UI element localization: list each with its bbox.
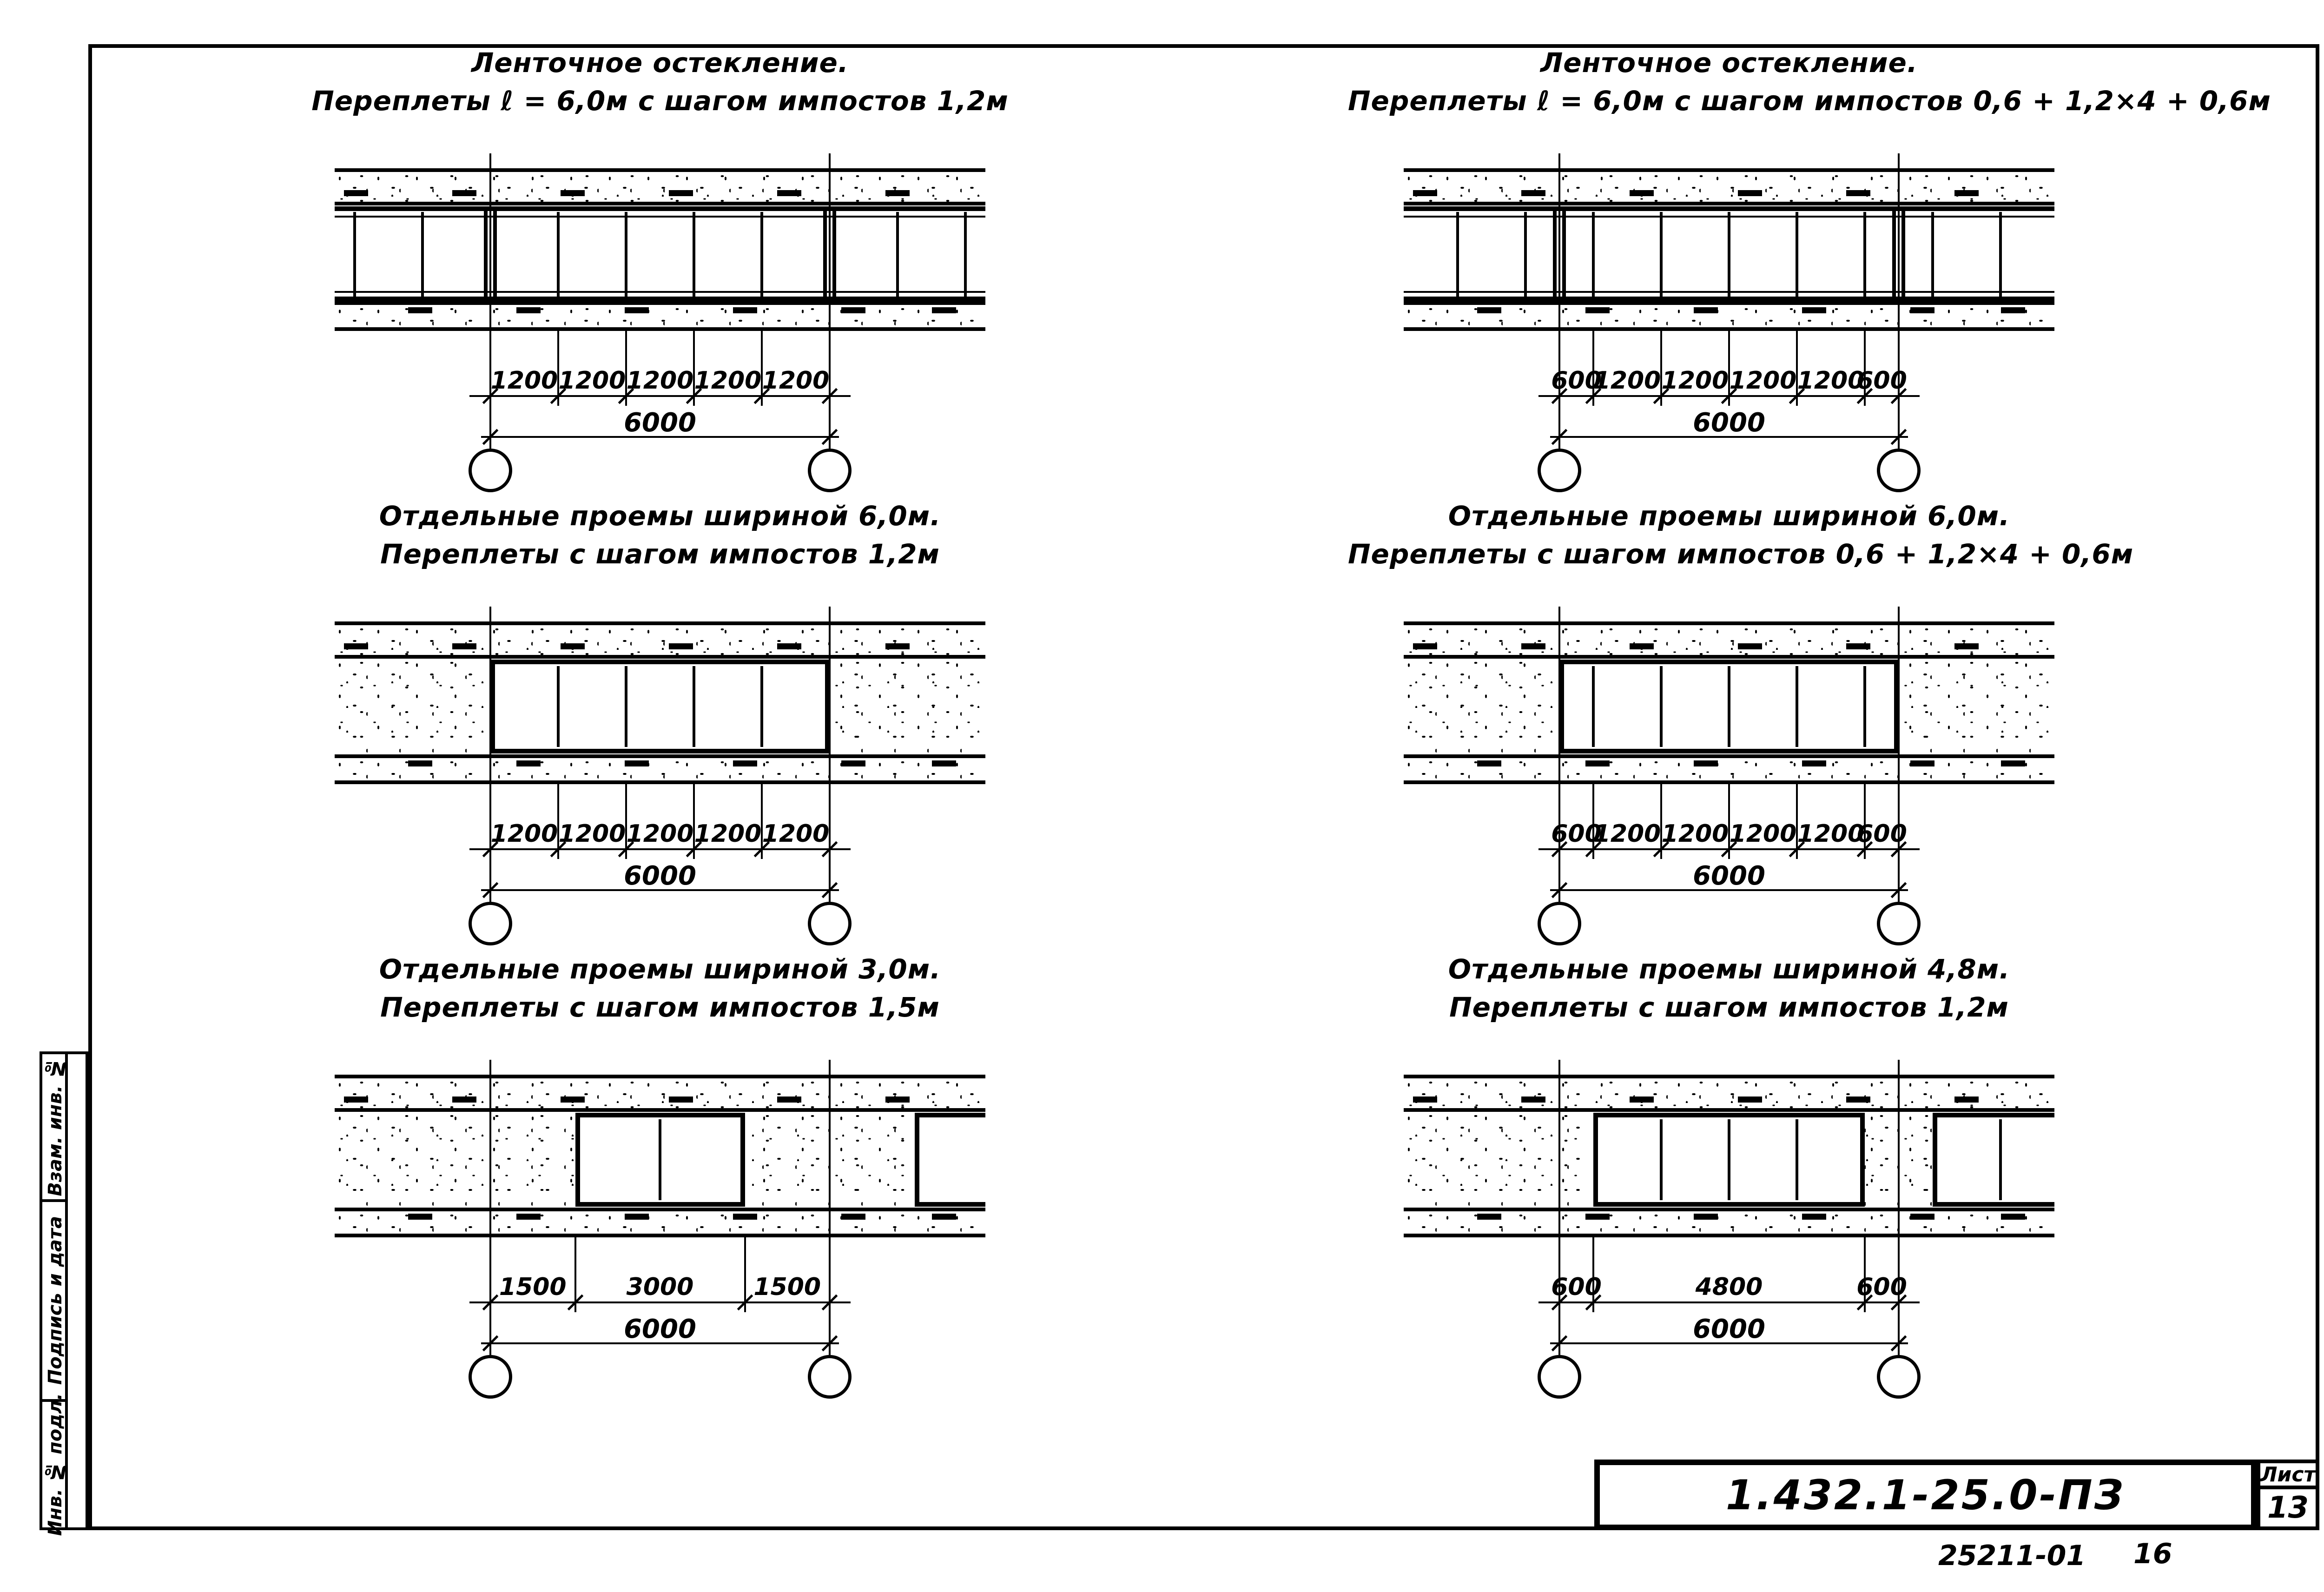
concrete-strip-top: [1404, 625, 2054, 655]
stamp-label: Взам. инв. №: [45, 1057, 66, 1196]
dimension-label: 1200: [1797, 367, 1865, 395]
sheet-label-cell: Лист: [2257, 1460, 2319, 1489]
grid-bubble: [808, 1355, 852, 1399]
window-mullion: [1524, 212, 1527, 297]
band-line: [335, 1208, 985, 1211]
concrete-dash-row: [1413, 760, 2045, 766]
window-mullion: [625, 212, 627, 297]
sash-joint-mullion: [1553, 206, 1557, 301]
dimension-label: 1200: [1662, 367, 1729, 395]
concrete-dash-row: [344, 643, 976, 649]
window-sash-frame-partial: [915, 1113, 986, 1207]
drawing-sheet: { "sheet": { "title_block": { "code": "1…: [0, 0, 2324, 1592]
window-mullion: [896, 212, 899, 297]
dimension-total-label: 6000: [624, 408, 696, 438]
band-line: [1404, 780, 2054, 784]
title-block: 1.432.1-25.0-ПЗ: [1594, 1460, 2257, 1530]
band-line: [1404, 301, 2054, 305]
window-mullion: [1728, 1119, 1730, 1200]
window-sash-frame-partial: [1933, 1113, 2054, 1207]
band-line: [1404, 1075, 2054, 1078]
dimension-label: 1200: [1730, 367, 1797, 395]
dimension-label: 600: [1551, 1273, 1602, 1301]
window-frame-line: [1404, 297, 2054, 301]
window-mullion: [557, 212, 560, 297]
panel-drawing: 1500300015006000: [335, 951, 985, 1406]
dimension-label: 600: [1856, 367, 1907, 395]
sash-joint-mullion: [832, 206, 836, 301]
panel-opening-3m-1-5: Отдельные проемы шириной 3,0м. Переплеты…: [335, 951, 985, 1406]
sash-joint-mullion: [493, 206, 497, 301]
window-frame-line: [335, 216, 985, 218]
concrete-strip-top: [1404, 172, 2054, 202]
window-mullion: [760, 666, 763, 747]
panel-drawing: 60012001200120012006006000: [1404, 44, 2054, 500]
dimension-label: 1200: [694, 820, 762, 848]
band-line: [1404, 202, 2054, 205]
sash-joint-mullion: [484, 206, 488, 301]
side-stamp-column: Взам. инв. № Подпись и дата Инв. № подл.: [40, 1051, 88, 1530]
grid-axis-line: [829, 1060, 831, 1355]
grid-axis-line: [1898, 205, 1900, 301]
window-mullion: [353, 212, 356, 297]
window-frame-line: [335, 297, 985, 301]
sash-joint-mullion: [1892, 206, 1896, 301]
grid-axis-line: [829, 205, 831, 301]
window-mullion: [421, 212, 424, 297]
window-mullion: [1863, 666, 1866, 747]
grid-bubble: [808, 449, 852, 492]
stamp-cell-vzam-inv: Взам. инв. №: [42, 1054, 68, 1202]
sheet-label: Лист: [2260, 1463, 2316, 1486]
dimension-label: 1200: [762, 820, 830, 848]
panel-drawing: 60012001200120012006006000: [1404, 497, 2054, 953]
margin-note-inventory: 25211-01: [1938, 1539, 2086, 1572]
grid-axis-line: [1558, 607, 1560, 902]
dimension-label: 3000: [627, 1273, 694, 1301]
concrete-strip-top: [335, 625, 985, 655]
concrete-dash-row: [1413, 1214, 2045, 1220]
window-mullion: [659, 1119, 661, 1200]
band-line: [335, 754, 985, 758]
band-line: [335, 327, 985, 331]
dimension-line: [469, 848, 851, 850]
margin-note-page: 16: [2133, 1538, 2172, 1570]
document-code: 1.432.1-25.0-ПЗ: [1726, 1471, 2125, 1519]
band-line: [335, 1234, 985, 1237]
band-line: [335, 301, 985, 305]
grid-axis-line: [1558, 1060, 1560, 1355]
dimension-label: 1200: [1797, 820, 1865, 848]
window-mullion: [1592, 212, 1595, 297]
window-mullion: [1660, 666, 1663, 747]
sash-joint-mullion: [1901, 206, 1905, 301]
window-mullion: [1660, 1119, 1663, 1200]
band-line: [335, 202, 985, 205]
window-mullion: [1592, 666, 1595, 747]
grid-axis-line: [489, 607, 491, 902]
dimension-label: 1500: [499, 1273, 567, 1301]
dimension-total-label: 6000: [1693, 408, 1765, 438]
window-mullion: [1796, 1119, 1798, 1200]
grid-bubble: [1538, 449, 1581, 492]
concrete-dash-row: [1413, 190, 2045, 196]
panel-ribbon-glazing-1-2: Ленточное остекление. Переплеты ℓ = 6,0м…: [335, 44, 985, 500]
window-mullion: [1456, 212, 1459, 297]
window-frame-line: [1404, 206, 2054, 211]
sash-joint-mullion: [1562, 206, 1566, 301]
panel-drawing: 60048006006000: [1404, 951, 2054, 1406]
window-mullion: [1796, 212, 1798, 297]
window-mullion: [760, 212, 763, 297]
concrete-dash-row: [1413, 1097, 2045, 1103]
window-mullion: [1999, 1119, 2002, 1200]
concrete-strip-top: [335, 172, 985, 202]
grid-bubble: [1538, 1355, 1581, 1399]
dimension-label: 1200: [1662, 820, 1729, 848]
window-mullion: [557, 666, 560, 747]
dimension-label: 1200: [694, 367, 762, 395]
concrete-dash-row: [1413, 643, 2045, 649]
band-line: [1404, 327, 2054, 331]
sash-joint-mullion: [823, 206, 827, 301]
grid-bubble: [1877, 1355, 1921, 1399]
window-mullion: [693, 212, 695, 297]
band-line: [1404, 1234, 2054, 1237]
window-mullion: [1728, 212, 1730, 297]
sheet-number: 13: [2267, 1491, 2309, 1525]
panel-ribbon-glazing-0-6-1-2: Ленточное остекление. Переплеты ℓ = 6,0м…: [1404, 44, 2054, 500]
dimension-label: 1200: [559, 820, 626, 848]
band-line: [335, 780, 985, 784]
band-line: [335, 621, 985, 625]
grid-axis-line: [1898, 1060, 1900, 1355]
panel-opening-6m-1-2: Отдельные проемы шириной 6,0м. Переплеты…: [335, 497, 985, 953]
grid-bubble: [1538, 902, 1581, 945]
grid-axis-line: [489, 1060, 491, 1355]
panel-opening-4-8m-1-2: Отдельные проемы шириной 4,8м. Переплеты…: [1404, 951, 2054, 1406]
window-mullion: [1796, 666, 1798, 747]
dimension-label: 600: [1856, 1273, 1907, 1301]
concrete-strip-top: [335, 1078, 985, 1108]
band-line: [335, 1108, 985, 1112]
window-mullion: [1931, 212, 1934, 297]
concrete-dash-row: [344, 1214, 976, 1220]
grid-bubble: [1877, 449, 1921, 492]
sheet-number-cell: 13: [2257, 1486, 2319, 1530]
grid-bubble: [469, 1355, 512, 1399]
concrete-dash-row: [344, 190, 976, 196]
panel-drawing: 120012001200120012006000: [335, 44, 985, 500]
dimension-label: 600: [1856, 820, 1907, 848]
grid-bubble: [808, 902, 852, 945]
concrete-dash-row: [344, 307, 976, 313]
band-line: [1404, 168, 2054, 172]
grid-axis-line: [489, 205, 491, 301]
band-line: [335, 168, 985, 172]
dimension-label: 1200: [491, 367, 558, 395]
dimension-label: 1200: [762, 367, 830, 395]
window-mullion: [1863, 212, 1866, 297]
window-sash-frame: [490, 660, 830, 753]
dimension-label: 1200: [1730, 820, 1797, 848]
window-mullion: [964, 212, 967, 297]
stamp-cell-podpis-data: Подпись и дата: [42, 1202, 68, 1402]
dimension-label: 1200: [559, 367, 626, 395]
band-line: [1404, 621, 2054, 625]
window-mullion: [1660, 212, 1663, 297]
dimension-label: 1200: [1594, 820, 1661, 848]
dimension-label: 1200: [491, 820, 558, 848]
window-glass-band: [335, 205, 985, 301]
dimension-label: 1200: [1594, 367, 1661, 395]
band-line: [1404, 1108, 2054, 1112]
band-line: [1404, 754, 2054, 758]
window-frame-line: [335, 206, 985, 211]
panel-opening-6m-0-6-1-2: Отдельные проемы шириной 6,0м. Переплеты…: [1404, 497, 2054, 953]
dimension-label: 1200: [627, 367, 694, 395]
dimension-label: 1200: [627, 820, 694, 848]
window-mullion: [625, 666, 627, 747]
concrete-dash-row: [344, 760, 976, 766]
grid-bubble: [1877, 902, 1921, 945]
dimension-total-label: 6000: [1693, 1314, 1765, 1344]
stamp-label: Подпись и дата: [45, 1216, 66, 1385]
panel-drawing: 120012001200120012006000: [335, 497, 985, 953]
dimension-total-label: 6000: [624, 861, 696, 891]
window-mullion: [1999, 212, 2002, 297]
concrete-strip-top: [1404, 1078, 2054, 1108]
dimension-label: 4800: [1696, 1273, 1763, 1301]
window-mullion: [1728, 666, 1730, 747]
grid-bubble: [469, 449, 512, 492]
dimension-total-label: 6000: [1693, 861, 1765, 891]
window-frame-line: [335, 291, 985, 293]
band-line: [1404, 1208, 2054, 1211]
band-line: [1404, 655, 2054, 659]
stamp-label: Инв. № подл.: [45, 1393, 66, 1536]
dimension-total-label: 6000: [624, 1314, 696, 1344]
window-mullion: [693, 666, 695, 747]
dimension-line: [469, 1301, 851, 1303]
band-line: [335, 1075, 985, 1078]
grid-axis-line: [1898, 607, 1900, 902]
dimension-line: [469, 395, 851, 397]
grid-bubble: [469, 902, 512, 945]
stamp-cell-inv-podl: Инв. № подл.: [42, 1402, 68, 1527]
concrete-dash-row: [1413, 307, 2045, 313]
dimension-label: 1500: [753, 1273, 821, 1301]
concrete-dash-row: [344, 1097, 976, 1103]
grid-axis-line: [829, 607, 831, 902]
grid-axis-line: [1558, 205, 1560, 301]
band-line: [335, 655, 985, 659]
